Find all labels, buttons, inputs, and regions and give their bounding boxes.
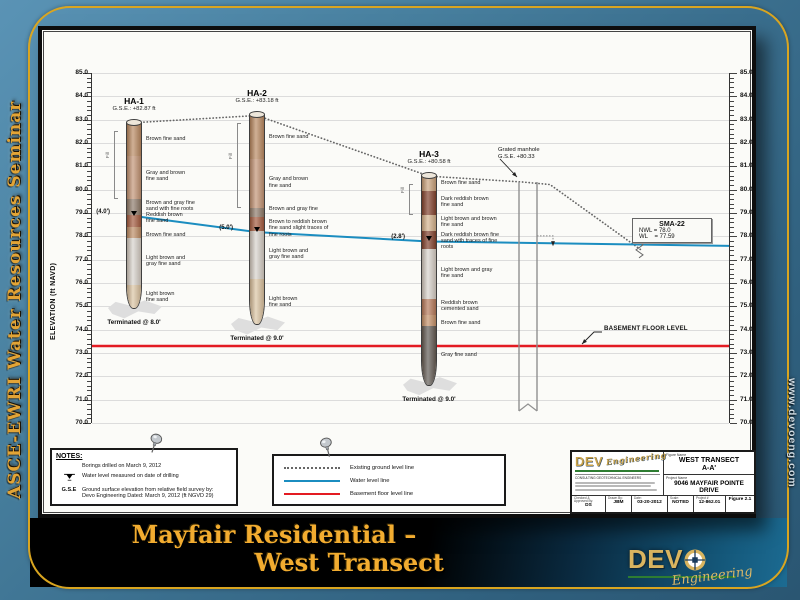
tick xyxy=(87,82,91,83)
tick-label: 83.0 xyxy=(740,116,776,123)
tick xyxy=(730,372,734,373)
tick xyxy=(730,264,734,265)
tick-label: 81.0 xyxy=(52,162,88,169)
tick xyxy=(87,334,91,335)
layer-segment xyxy=(422,299,436,316)
tick xyxy=(730,129,734,130)
tick xyxy=(730,376,737,377)
tick xyxy=(87,344,91,345)
layer-segment xyxy=(127,156,141,200)
basement-floor-label: BASEMENT FLOOR LEVEL xyxy=(604,325,688,332)
tick xyxy=(730,110,734,111)
tick xyxy=(87,414,91,415)
layer-label: Light brown and gray fine sand xyxy=(146,255,226,267)
layer-segment xyxy=(422,326,436,386)
tick-label: 83.0 xyxy=(52,116,88,123)
tick xyxy=(87,227,91,228)
address-line xyxy=(575,485,651,487)
tick xyxy=(730,176,734,177)
tick xyxy=(730,348,734,349)
tick xyxy=(730,414,734,415)
terminated-label: Terminated @ 9.0' xyxy=(379,396,479,403)
tick xyxy=(730,162,734,163)
tick xyxy=(730,120,737,121)
tick xyxy=(87,339,91,340)
tick-label: 78.0 xyxy=(52,232,88,239)
tick xyxy=(730,367,734,368)
tick xyxy=(87,87,91,88)
field-drawn-by: Drawn By: JBM xyxy=(606,496,632,512)
tick xyxy=(87,386,91,387)
tick xyxy=(87,176,91,177)
layer-segment xyxy=(250,159,264,209)
tick xyxy=(87,78,91,79)
sma-annotation-box: SMA-22 NWL = 78.0 WL = 77.59 xyxy=(632,218,712,243)
layer-segment xyxy=(422,191,436,217)
fill-bracket-end xyxy=(114,131,118,132)
layer-segment xyxy=(422,215,436,232)
tick xyxy=(730,78,734,79)
tick xyxy=(730,288,734,289)
boring-gse: G.S.E.: +80.58 ft xyxy=(381,159,477,165)
layer-label: Brown and gray fine sand with fine roots xyxy=(146,200,226,212)
tick xyxy=(730,339,734,340)
tick xyxy=(730,311,734,312)
cross-section-plot: SMA-22 NWL = 78.0 WL = 77.59 Grated manh… xyxy=(92,73,729,423)
tick xyxy=(730,222,734,223)
pushpin-icon xyxy=(318,436,336,458)
grated-manhole-label: Grated manhole G.S.E. +80.33 xyxy=(498,147,540,160)
tick xyxy=(730,250,734,251)
tick xyxy=(730,418,734,419)
notes-box: NOTES: Borings drilled on March 9, 2012 … xyxy=(50,448,238,506)
boring-id: HA-1 xyxy=(86,96,182,106)
layer-label: Light brown fine sand xyxy=(269,296,349,308)
tick-label: 74.0 xyxy=(740,326,776,333)
layer-label: Reddish brown fine sand xyxy=(146,212,226,224)
tick xyxy=(730,204,734,205)
water-level-marker xyxy=(254,227,260,232)
tick xyxy=(730,316,734,317)
layer-label: Brown and gray fine xyxy=(269,206,349,212)
tick xyxy=(87,222,91,223)
tick xyxy=(87,134,91,135)
devo-green-bar xyxy=(575,470,659,472)
boring-cap-HA-1 xyxy=(126,119,142,126)
boring-gse: G.S.E.: +83.18 ft xyxy=(209,98,305,104)
fill-label: Fill xyxy=(401,187,406,193)
tick xyxy=(730,246,734,247)
tick xyxy=(730,227,734,228)
legend-box: Existing ground level line Water level l… xyxy=(272,454,506,506)
tick xyxy=(730,306,737,307)
tick-label: 75.0 xyxy=(740,302,776,309)
legend-item: Existing ground level line xyxy=(284,461,494,474)
layer-label: Light brown and gray fine sand xyxy=(441,267,513,279)
tick xyxy=(87,129,91,130)
tick xyxy=(730,190,737,191)
tick xyxy=(730,344,734,345)
layer-label: Gray and brown fine sand xyxy=(146,170,226,182)
layer-label: Dark reddish brown fine sand with traces… xyxy=(441,232,513,250)
fill-bracket-end xyxy=(237,123,241,124)
tick xyxy=(730,143,737,144)
tick xyxy=(730,330,737,331)
devo-logo-footer: DEV Engineering xyxy=(628,544,768,589)
tick xyxy=(730,260,737,261)
tick xyxy=(730,166,737,167)
boring-header-HA-3: HA-3G.S.E.: +80.58 ft xyxy=(381,149,477,165)
boring-header-HA-1: HA-1G.S.E.: +82.87 ft xyxy=(86,96,182,112)
tick xyxy=(87,367,91,368)
project-name-cell: Project Name 9046 MAYFAIR POINTE DRIVE xyxy=(664,474,754,496)
tick-label: 85.0 xyxy=(740,69,776,76)
tick xyxy=(87,199,91,200)
tick xyxy=(87,358,91,359)
tick-label: 76.0 xyxy=(52,279,88,286)
tick-label: 80.0 xyxy=(52,186,88,193)
devo-logo-titleblock: DEV Engineering CONSULTING GEOTECHNICAL … xyxy=(572,452,664,495)
tick xyxy=(730,171,734,172)
layer-segment xyxy=(127,124,141,157)
tick-label: 84.0 xyxy=(740,92,776,99)
devo-o-crosshair-icon xyxy=(684,549,706,571)
layer-label: Brown fine sand xyxy=(441,180,513,186)
tick xyxy=(87,404,91,405)
tick xyxy=(730,423,737,424)
tick xyxy=(87,381,91,382)
figure-name-cell: Figure Name WEST TRANSECT A-A' xyxy=(664,452,754,474)
tick xyxy=(730,208,734,209)
tick xyxy=(730,194,734,195)
water-level-icon xyxy=(63,473,76,482)
right-banner-url: www.devoeng.com xyxy=(786,378,798,596)
layer-segment xyxy=(250,231,264,280)
layer-label: Brown fine sand xyxy=(441,320,513,326)
sma-title: SMA-22 xyxy=(636,221,708,228)
tick xyxy=(730,148,734,149)
field-checked-by: Checked & Approved By: DS xyxy=(572,496,606,512)
left-banner-text: ASCE-EWRI Water Resources Seminar xyxy=(0,0,30,600)
tick-label: 74.0 xyxy=(52,326,88,333)
layer-label: Brown fine sand xyxy=(269,134,349,140)
tick xyxy=(730,124,734,125)
layer-label: Light brown and brown fine sand xyxy=(441,216,513,228)
tick xyxy=(730,358,734,359)
boring-id: HA-2 xyxy=(209,88,305,98)
terminated-label: Terminated @ 8.0' xyxy=(84,319,184,326)
tick-label: 84.0 xyxy=(52,92,88,99)
tick xyxy=(87,241,91,242)
tick xyxy=(87,148,91,149)
tick xyxy=(730,218,734,219)
tick xyxy=(730,283,737,284)
tick xyxy=(87,194,91,195)
address-line xyxy=(575,482,655,484)
tick xyxy=(730,73,737,74)
pushpin-icon xyxy=(146,432,164,454)
field-project-number: Project # 12-862.01 xyxy=(694,496,726,512)
tick xyxy=(730,390,734,391)
tick xyxy=(730,138,734,139)
tick xyxy=(87,316,91,317)
tick xyxy=(87,274,91,275)
tick xyxy=(730,185,734,186)
slide-root: ASCE-EWRI Water Resources Seminar www.de… xyxy=(0,0,800,600)
fill-label: Fill xyxy=(106,152,111,158)
tick xyxy=(730,404,734,405)
devo-subtitle: CONSULTING GEOTECHNICAL ENGINEERS xyxy=(575,474,660,480)
tick xyxy=(730,409,734,410)
layer-label: Gray fine sand xyxy=(441,352,513,358)
tick xyxy=(87,311,91,312)
tick xyxy=(730,278,734,279)
field-figure-number: Figure 2.1 xyxy=(726,496,754,512)
sma-wl: WL = 77.59 xyxy=(636,234,708,240)
layer-label: Brown fine sand xyxy=(146,232,226,238)
tick xyxy=(730,92,734,93)
tick xyxy=(730,241,734,242)
boring-column-HA-3 xyxy=(421,176,437,386)
tick xyxy=(730,381,734,382)
tick-label: 82.0 xyxy=(52,139,88,146)
tick xyxy=(87,288,91,289)
tick xyxy=(730,232,734,233)
tick xyxy=(87,297,91,298)
tick-label: 76.0 xyxy=(740,279,776,286)
tick xyxy=(730,134,734,135)
tick xyxy=(87,269,91,270)
basement-line-sample xyxy=(284,493,340,495)
field-date: Date: 03-20-2012 xyxy=(632,496,668,512)
tick xyxy=(730,199,734,200)
water-level-marker xyxy=(426,236,432,241)
tick xyxy=(87,250,91,251)
tick xyxy=(730,302,734,303)
tick xyxy=(87,264,91,265)
note-row: Borings drilled on March 9, 2012 xyxy=(56,463,232,470)
boring-gse: G.S.E.: +82.87 ft xyxy=(86,106,182,112)
tick xyxy=(87,171,91,172)
manhole-break-mark xyxy=(519,404,537,411)
tick xyxy=(730,395,734,396)
tick-label: 70.0 xyxy=(52,419,88,426)
tick-label: 81.0 xyxy=(740,162,776,169)
tick-label: 80.0 xyxy=(740,186,776,193)
fill-bracket xyxy=(114,131,115,198)
layer-label: Light brown and gray fine sand xyxy=(269,248,349,260)
legend-item: Water level line xyxy=(284,474,494,487)
layer-segment xyxy=(127,238,141,286)
existing-ground-line-sample xyxy=(284,467,340,469)
tick xyxy=(730,82,734,83)
boring-header-HA-2: HA-2G.S.E.: +83.18 ft xyxy=(209,88,305,104)
tick xyxy=(87,409,91,410)
fill-label: Fill xyxy=(229,153,234,159)
fill-bracket-end xyxy=(237,207,241,208)
tick xyxy=(730,115,734,116)
tick xyxy=(730,213,737,214)
water-line-sample xyxy=(284,480,340,482)
tick-label: 77.0 xyxy=(52,256,88,263)
layer-label: Gray and brown fine sand xyxy=(269,176,349,188)
tick xyxy=(730,353,737,354)
axis-left xyxy=(91,73,92,423)
tick xyxy=(87,157,91,158)
layer-label: Brown fine sand xyxy=(146,136,226,142)
tick xyxy=(730,334,734,335)
tick-label: 75.0 xyxy=(52,302,88,309)
notes-title: NOTES: xyxy=(56,453,232,460)
fill-bracket-end xyxy=(409,184,413,185)
layer-label: Dark reddish brown fine sand xyxy=(441,196,513,208)
tick xyxy=(730,274,734,275)
tick xyxy=(730,362,734,363)
tick xyxy=(87,204,91,205)
tick xyxy=(87,180,91,181)
address-line xyxy=(575,489,657,491)
tick xyxy=(730,106,734,107)
tick xyxy=(730,255,734,256)
tick xyxy=(730,101,734,102)
terminated-label: Terminated @ 9.0' xyxy=(207,335,307,342)
boring-id: HA-3 xyxy=(381,149,477,159)
tick xyxy=(87,246,91,247)
note-row: Water level measured on date of drilling xyxy=(56,473,232,484)
tick xyxy=(87,218,91,219)
layer-label: Light brown fine sand xyxy=(146,291,226,303)
tick-label: 71.0 xyxy=(52,396,88,403)
layer-segment xyxy=(250,279,264,325)
tick xyxy=(730,157,734,158)
tick xyxy=(87,152,91,153)
axis-right xyxy=(729,73,730,423)
layer-segment xyxy=(250,116,264,160)
plot-lines-svg xyxy=(92,73,729,423)
tick-label: 73.0 xyxy=(52,349,88,356)
tick-label: 70.0 xyxy=(740,419,776,426)
title-block: DEV Engineering CONSULTING GEOTECHNICAL … xyxy=(570,450,756,514)
tick-label: 82.0 xyxy=(740,139,776,146)
tick xyxy=(87,124,91,125)
layer-segment xyxy=(422,177,436,192)
tick xyxy=(730,152,734,153)
water-depth-label: (5.0') xyxy=(197,225,233,231)
fill-bracket xyxy=(409,184,410,214)
tick xyxy=(730,325,734,326)
tick xyxy=(730,297,734,298)
tick xyxy=(87,362,91,363)
note-row: G.S.E Ground surface elevation from rela… xyxy=(56,487,232,500)
boring-column-HA-2 xyxy=(249,115,265,325)
tick-label: 72.0 xyxy=(740,372,776,379)
tick-label: 78.0 xyxy=(740,232,776,239)
tick xyxy=(730,292,734,293)
fill-bracket-end xyxy=(409,214,413,215)
tick-label: 72.0 xyxy=(52,372,88,379)
gridline xyxy=(92,423,729,424)
water-depth-label: (2.8') xyxy=(369,234,405,240)
layer-segment xyxy=(127,285,141,309)
fill-bracket-end xyxy=(114,198,118,199)
slide-title: Mayfair Residential – West Transect xyxy=(92,521,456,578)
layer-segment xyxy=(422,249,436,300)
fill-bracket xyxy=(237,123,238,207)
tick xyxy=(87,292,91,293)
layer-label: Reddish brown cemented sand xyxy=(441,300,513,312)
figure-panel: ELEVATION (ft NAVD) SMA-22 NWL = 78.0 WL… xyxy=(38,26,756,518)
tick xyxy=(730,87,734,88)
legend-item: Basement floor level line xyxy=(284,487,494,500)
tick xyxy=(730,269,734,270)
tick-label: 85.0 xyxy=(52,69,88,76)
field-scale: Scale: NOTED xyxy=(668,496,694,512)
tick xyxy=(730,236,737,237)
tick xyxy=(730,400,737,401)
water-depth-label: (4.0') xyxy=(74,209,110,215)
tick xyxy=(730,180,734,181)
tick xyxy=(730,320,734,321)
tick-label: 77.0 xyxy=(740,256,776,263)
layer-label: Brown to reddish brown fine sand slight … xyxy=(269,219,349,237)
tick-label: 79.0 xyxy=(740,209,776,216)
tick-label: 73.0 xyxy=(740,349,776,356)
tick xyxy=(730,96,737,97)
tick xyxy=(730,386,734,387)
tick xyxy=(87,390,91,391)
tick-label: 71.0 xyxy=(740,396,776,403)
water-level-marker xyxy=(131,211,137,216)
